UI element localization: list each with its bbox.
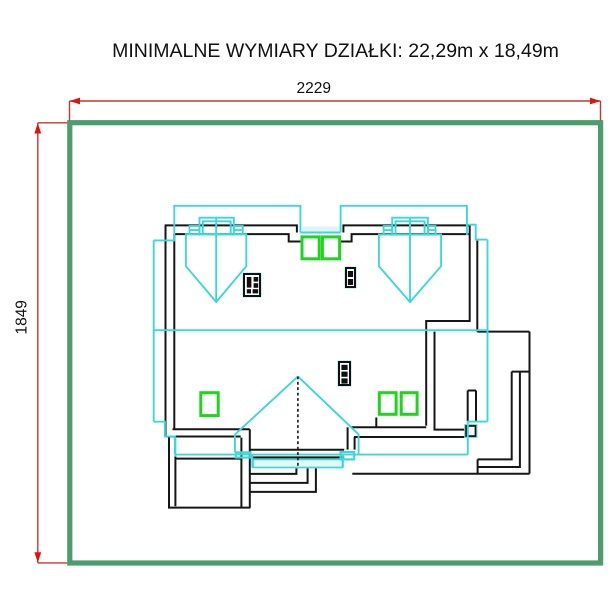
svg-text:2229: 2229: [297, 80, 331, 97]
svg-text:MINIMALNE WYMIARY DZIAŁKI: 22,: MINIMALNE WYMIARY DZIAŁKI: 22,29m x 18,4…: [112, 40, 559, 62]
svg-text:1849: 1849: [14, 300, 31, 334]
